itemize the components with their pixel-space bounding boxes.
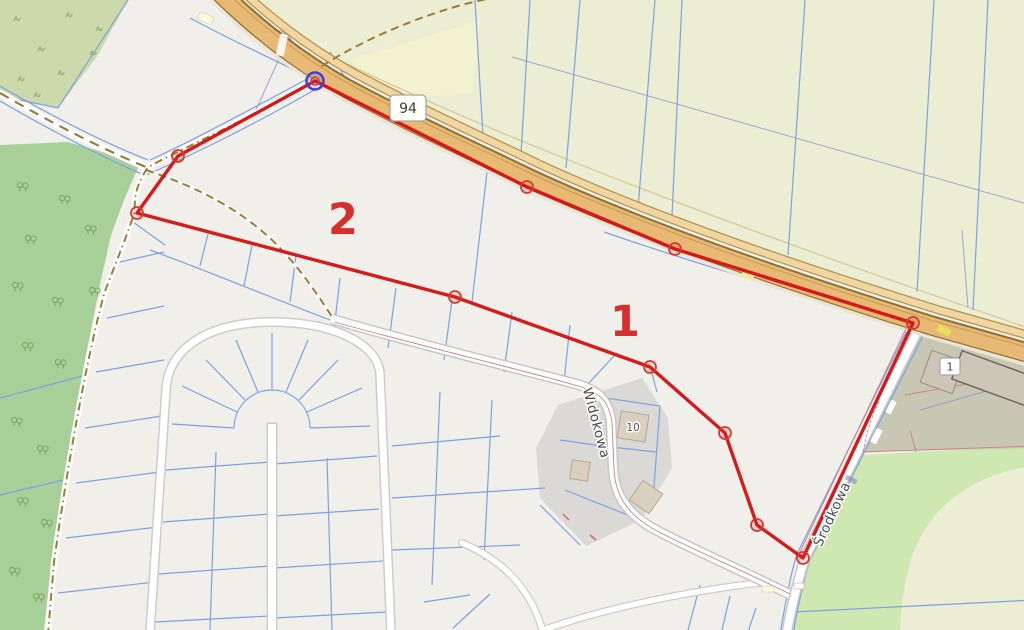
route-94-ref: 94: [399, 101, 417, 117]
house-building: [570, 460, 591, 482]
polygon-vertex[interactable]: [751, 519, 763, 531]
polygon-vertex[interactable]: [131, 207, 143, 219]
polygon-vertex[interactable]: [719, 427, 731, 439]
area-marker-1: 1: [610, 297, 640, 347]
route-94-shield: 94: [390, 95, 426, 121]
polygon-vertex[interactable]: [172, 150, 184, 162]
active-vertex-ring[interactable]: [307, 73, 324, 90]
active-vertex[interactable]: [307, 73, 324, 90]
polygon-vertex[interactable]: [797, 552, 809, 564]
map-viewport[interactable]: 94 Widokowa Środkowa 10 1 1 2: [0, 0, 1024, 630]
polygon-vertex[interactable]: [669, 243, 681, 255]
building-plate-text: 1: [947, 361, 954, 374]
building-plate-1: 1: [940, 358, 960, 375]
polygon-vertex[interactable]: [521, 181, 533, 193]
polygon-vertex[interactable]: [644, 361, 656, 373]
map-canvas[interactable]: 94 Widokowa Środkowa 10 1 1 2: [0, 0, 1024, 630]
house-number-10: 10: [626, 422, 639, 434]
area-marker-2: 2: [328, 195, 358, 245]
polygon-vertex[interactable]: [449, 291, 461, 303]
polygon-vertex[interactable]: [907, 317, 919, 329]
